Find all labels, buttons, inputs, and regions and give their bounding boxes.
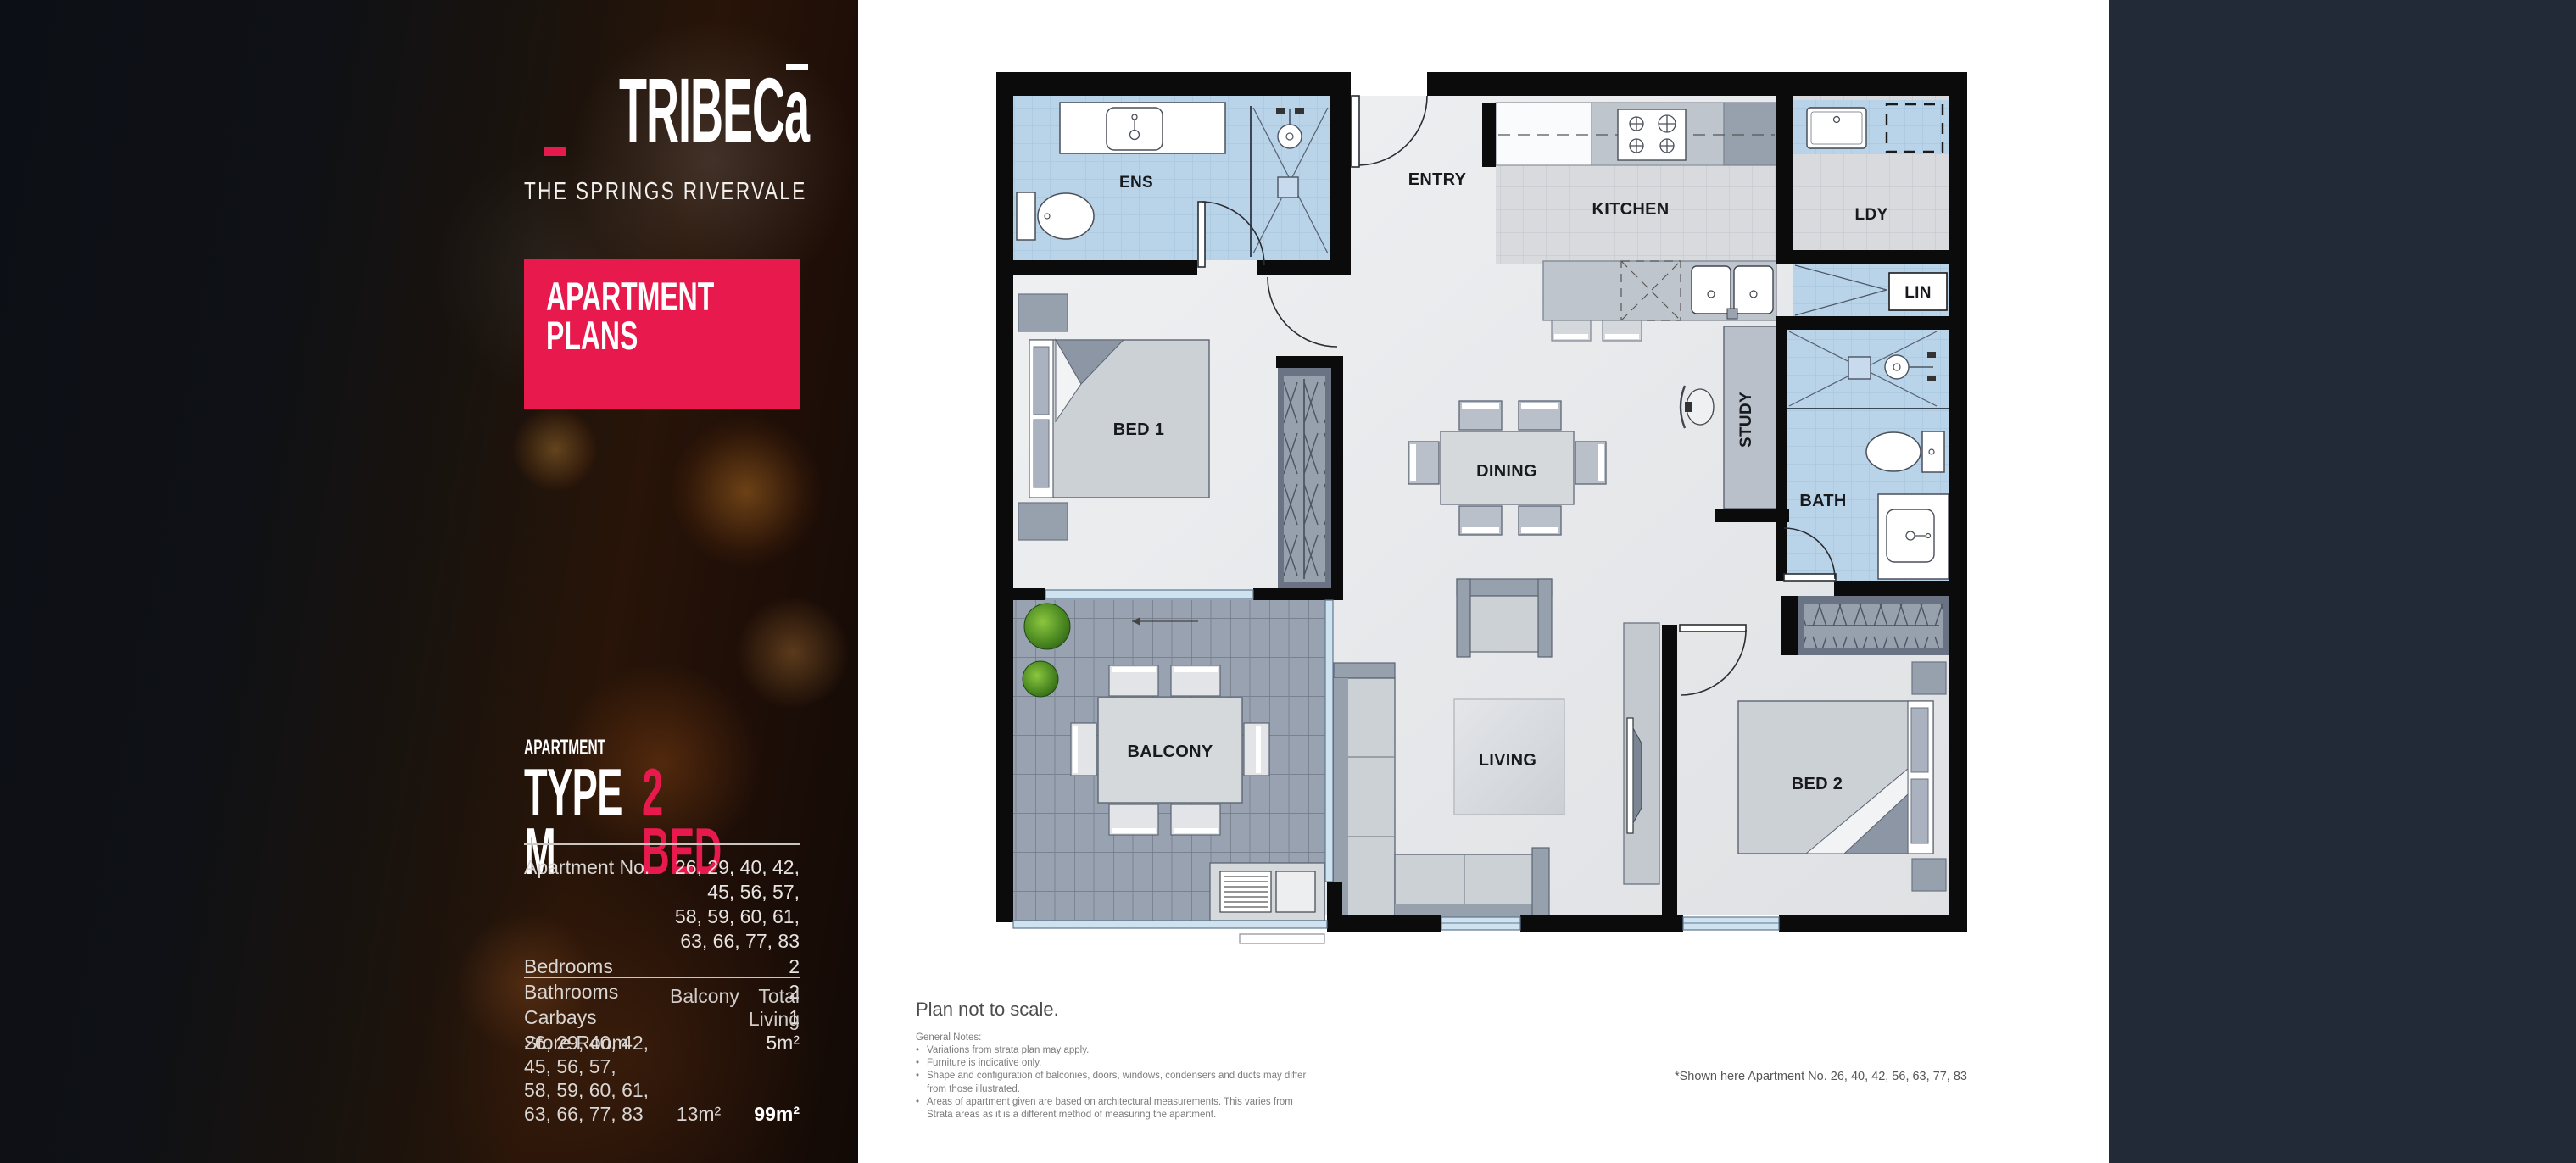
room-label-bed1: BED 1 (1113, 420, 1164, 439)
areas-table: Balcony Total Living 26, 29, 40, 42, 45,… (524, 977, 800, 1126)
areas-row-label: 26, 29, 40, 42, 45, 56, 57, 58, 59, 60, … (524, 1031, 670, 1126)
balcony-step (1240, 934, 1324, 943)
floor-plan: ENS ENTRY KITCHEN LDY LIN STUDY BATH DIN… (996, 72, 1967, 954)
shown-here-note: *Shown here Apartment No. 26, 40, 42, 56… (858, 1070, 1967, 1083)
room-label-bath: BATH (1799, 492, 1846, 510)
room-label-study: STUDY (1737, 392, 1755, 448)
shower-head (1885, 355, 1909, 379)
room-label-ens: ENS (1119, 174, 1153, 192)
note-item: Areas of apartment given are based on ar… (916, 1096, 1314, 1121)
spec-row-apartment-no: Apartment No. 26, 29, 40, 42, 45, 56, 57… (524, 855, 800, 954)
toilet-bowl (1866, 432, 1921, 471)
room-label-lin: LIN (1904, 284, 1932, 302)
room-label-balcony: BALCONY (1128, 743, 1213, 761)
page-content: ENS ENTRY KITCHEN LDY LIN STUDY BATH DIN… (858, 0, 2109, 1163)
banner-line2: PLANS (546, 316, 718, 355)
areas-balcony-value: 13m² (670, 1102, 728, 1126)
toilet-cistern (1922, 431, 1944, 472)
note-item: Variations from strata plan may apply. (916, 1044, 1314, 1057)
side-table (1018, 503, 1068, 540)
tv-unit (1624, 623, 1659, 884)
areas-col-total: Total Living (728, 985, 800, 1031)
room-label-entry: ENTRY (1408, 170, 1467, 189)
room-label-dining: DINING (1476, 462, 1537, 481)
general-notes-heading: General Notes: (916, 1032, 1314, 1043)
room-label-bed2: BED 2 (1792, 775, 1843, 793)
areas-col-empty (524, 985, 670, 1031)
brand-logo: TRIBECa EAST THE SPRINGS RIVERVALE (524, 75, 812, 206)
bed1-sliding-door (1045, 590, 1253, 599)
side-table (1018, 294, 1068, 331)
banner-line1: APARTMENT (546, 277, 718, 316)
plant (1023, 661, 1058, 697)
room-label-living: LIVING (1479, 751, 1536, 770)
ens-toilet (1017, 192, 1094, 240)
ens-vanity (1060, 103, 1225, 153)
cooktop (1618, 109, 1686, 160)
bed1-wardrobe (1278, 368, 1331, 590)
bbq (1210, 863, 1324, 921)
balcony-sliding-door (1325, 600, 1333, 882)
side-table (1912, 859, 1946, 891)
areas-total-value: 99m² (728, 1102, 800, 1126)
plant (1024, 604, 1070, 649)
bed2-wardrobe (1798, 596, 1949, 655)
armchair (1457, 579, 1552, 657)
laundry-trough (1807, 108, 1866, 148)
logo-red-underline (544, 147, 566, 156)
kitchen-sink (1692, 266, 1731, 314)
spec-row-bedrooms: Bedrooms 2 (524, 954, 800, 979)
note-item: Furniture is indicative only. (916, 1057, 1314, 1070)
general-notes: Plan not to scale. General Notes: Variat… (916, 999, 1314, 1121)
plan-not-to-scale: Plan not to scale. (916, 999, 1314, 1021)
apartment-plans-banner: APARTMENT PLANS (524, 259, 800, 409)
logo-word-tribeca: TRIBECa (619, 75, 809, 146)
room-label-kitchen: KITCHEN (1592, 200, 1670, 219)
side-table (1912, 662, 1946, 694)
photo-sidebar: TRIBECa EAST THE SPRINGS RIVERVALE APART… (0, 0, 858, 1163)
logo-tagline: THE SPRINGS RIVERVALE (524, 178, 749, 206)
balcony-balustrade (1013, 921, 1327, 928)
shower-drain (1848, 357, 1871, 379)
kitchen-bench (1496, 103, 1776, 165)
room-label-ldy: LDY (1855, 206, 1888, 224)
areas-col-balcony: Balcony (670, 985, 728, 1031)
